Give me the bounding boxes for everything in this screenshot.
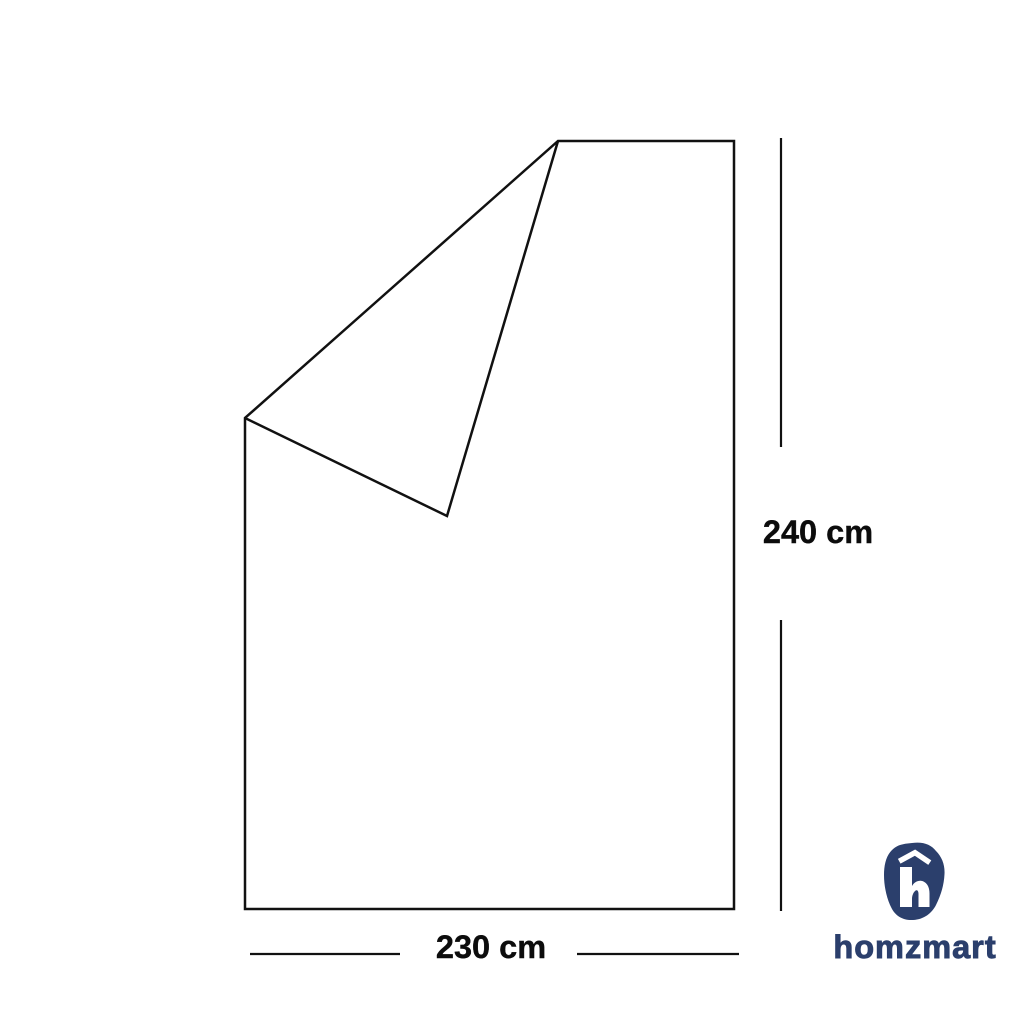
svg-text:240 cm: 240 cm bbox=[763, 514, 873, 550]
svg-text:homzmart: homzmart bbox=[833, 929, 996, 965]
svg-text:230 cm: 230 cm bbox=[436, 929, 546, 965]
